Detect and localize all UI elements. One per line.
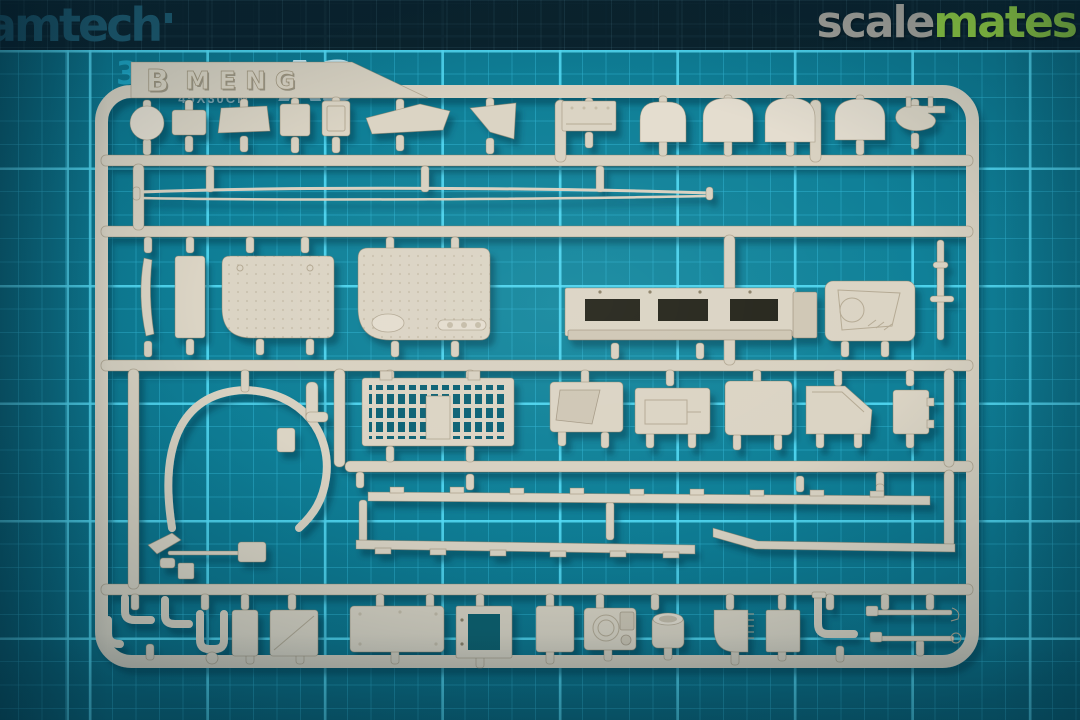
part-seat-back-4: [835, 99, 885, 140]
part-antenna-rods: [133, 166, 713, 200]
part-small-elbow: [306, 382, 328, 422]
part-textured-box: [562, 101, 616, 131]
part-side-skirt-strip-2: [356, 540, 695, 558]
part-door-plain: [725, 381, 792, 435]
part-tow-rod-1: [866, 606, 959, 621]
part-thin-rod-vertical: [930, 240, 954, 340]
part-bracket-blob: [896, 97, 945, 131]
part-hatch-small-1: [172, 110, 206, 135]
part-box-folded: [270, 610, 318, 656]
part-shovel-rod: [168, 542, 266, 579]
meng-logo-embossed: MENG: [185, 66, 304, 95]
part-thin-blade: [141, 258, 154, 336]
part-hull-side-windows: [565, 288, 817, 340]
part-textured-panel-2: [358, 248, 490, 340]
part-open-frame: [456, 606, 512, 658]
part-hatch-small-3: [280, 104, 310, 136]
part-quarter-fender: [714, 610, 754, 652]
part-box-small: [232, 610, 258, 656]
part-grille: [362, 371, 514, 446]
part-seat-back-3: [765, 98, 815, 142]
part-cylinder-cup: [652, 613, 684, 648]
part-side-skirt-strip-1: [368, 487, 930, 505]
part-door-small: [893, 390, 934, 434]
part-door-angled: [806, 386, 872, 434]
sprue-b: B B MENG MENG: [0, 0, 1080, 720]
part-angled-plate-1: [366, 104, 450, 134]
part-rect-panel-small: [766, 610, 800, 652]
part-door-outline: [635, 388, 710, 434]
part-textured-panel-1: [222, 256, 334, 338]
part-hatch-small-2: [218, 106, 270, 133]
model-kit-sprue-photo: amtech scalemates 3 CUTTING MAT 45X30CM …: [0, 0, 1080, 720]
part-engine-cover: [825, 281, 915, 341]
part-hatch-framed: [322, 101, 350, 136]
part-door-beveled: [550, 382, 623, 432]
part-long-panel: [350, 606, 444, 652]
part-wheel-arch-hoop: [148, 370, 327, 568]
sprue-letter: B: [146, 64, 169, 99]
part-angled-strip: [713, 528, 955, 552]
part-seat-back-1: [640, 102, 686, 142]
part-angled-plate-2: [470, 103, 516, 139]
part-tow-rod-2: [870, 632, 961, 643]
sprue-gate-stems: [131, 95, 934, 668]
part-square-panel: [536, 606, 574, 652]
part-ball: [130, 106, 164, 140]
part-seat-back-2: [703, 98, 753, 142]
part-tall-panel: [175, 256, 205, 338]
part-hook-brackets: [108, 598, 189, 644]
part-hatch-ring: [584, 608, 636, 650]
